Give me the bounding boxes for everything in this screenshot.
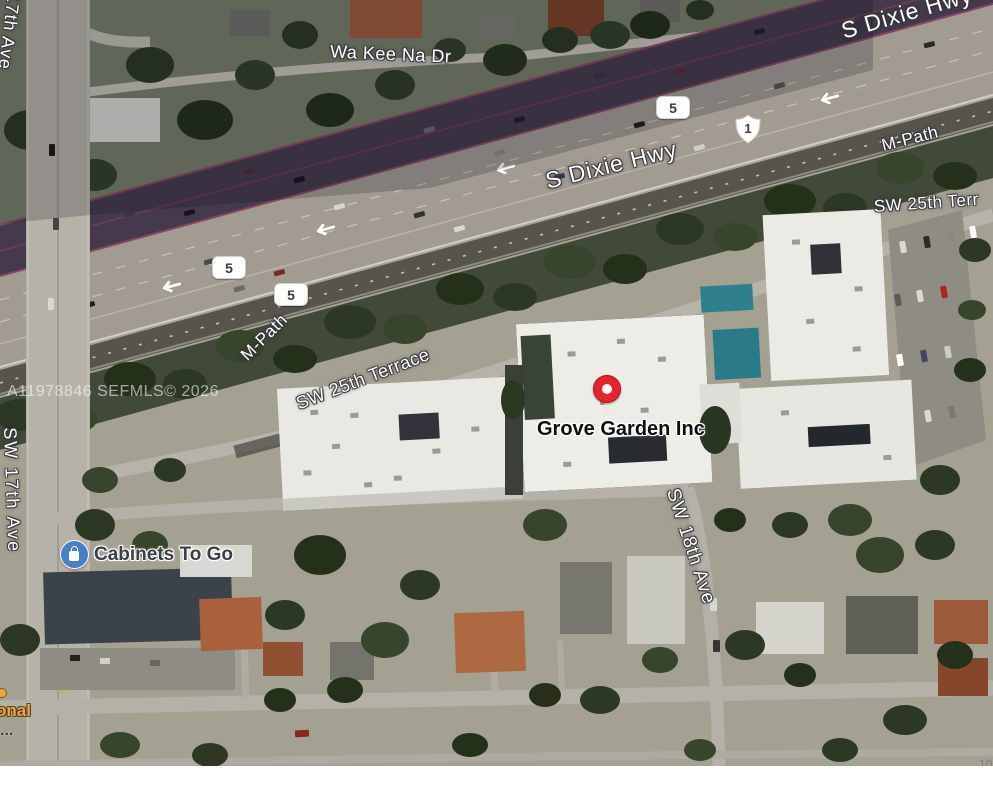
map-pin-grove-garden[interactable] (593, 375, 621, 419)
satellite-imagery (0, 0, 993, 766)
route-shield-fl5: 5 (656, 96, 690, 119)
svg-text:1: 1 (744, 121, 751, 136)
clipped-poi-label-left: onal (0, 701, 31, 721)
shopping-bag-icon (60, 540, 89, 569)
clipped-poi-ellipsis: ... (0, 722, 13, 740)
pin-hole (602, 384, 612, 394)
listing-map-screenshot: 17th Ave Wa Kee Na Dr S Dixie Hwy S Dixi… (0, 0, 993, 787)
route-shield-us1: 1 (734, 114, 762, 144)
bottom-white-margin (0, 766, 993, 787)
route-shield-fl5: 5 (212, 256, 246, 279)
poi-label-grove-garden[interactable]: Grove Garden Inc (537, 418, 705, 441)
clipped-label-bottom-right: 10 (979, 757, 992, 766)
poi-label-cabinets: Cabinets To Go (94, 544, 233, 566)
satellite-map-canvas[interactable]: 17th Ave Wa Kee Na Dr S Dixie Hwy S Dixi… (0, 0, 993, 766)
poi-cabinets-to-go[interactable]: Cabinets To Go (60, 540, 233, 569)
route-shield-fl5: 5 (274, 283, 308, 306)
